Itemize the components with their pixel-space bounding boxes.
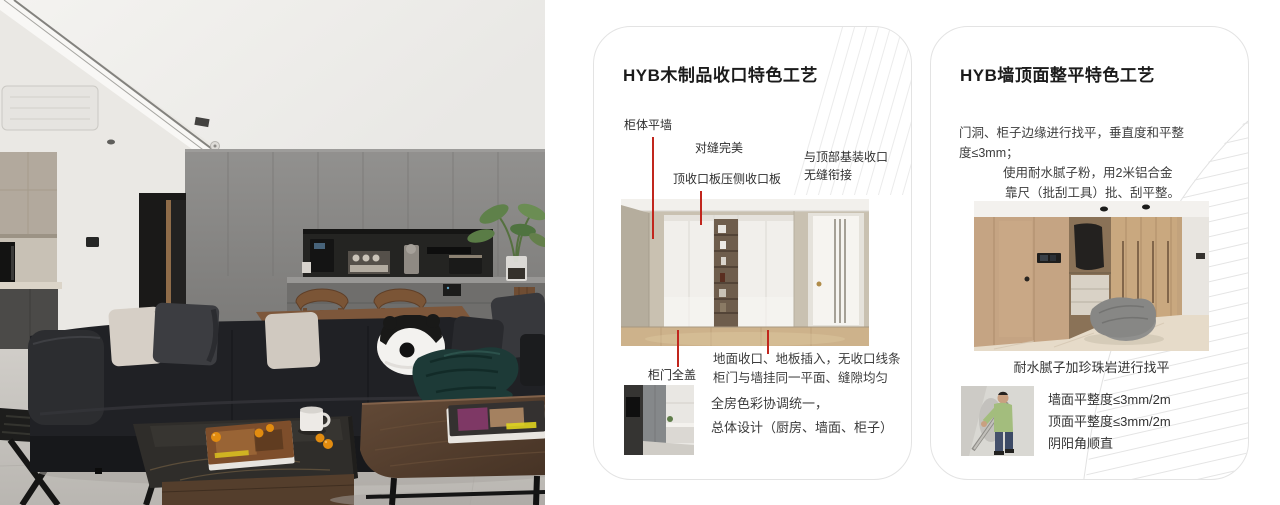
living-room-photo: [0, 0, 545, 505]
card-wood-closing-craft: HYB木制品收口特色工艺 柜体平墙 对缝完美 顶收口板压侧收口板 与顶部基装收口…: [593, 26, 912, 480]
cabinet-render-image: [621, 199, 869, 346]
worker-leveling-image: [961, 386, 1034, 456]
leader-line-top-board: [700, 191, 702, 225]
ceiling: [0, 0, 545, 152]
leader-line-cabinet-wall: [652, 137, 654, 239]
callout-top-closing-board: 顶收口板压侧收口板: [673, 170, 781, 188]
spec-straight-corners: 阴阳角顺直: [1048, 433, 1171, 455]
leader-line-door-cover: [677, 330, 679, 367]
para-leveling-line1: 门洞、柜子边缘进行找平，垂直度和平整: [959, 123, 1184, 143]
para-putty-line1: 使用耐水腻子粉，用2米铝合金: [1003, 163, 1172, 183]
callout-perfect-seam: 对缝完美: [695, 139, 743, 157]
leveling-specs: 墙面平整度≤3mm/2m 顶面平整度≤3mm/2m 阴阳角顺直: [1048, 389, 1171, 455]
summary-color-harmony: 全房色彩协调统一，: [711, 393, 828, 412]
spec-ceiling-flatness: 顶面平整度≤3mm/2m: [1048, 411, 1171, 433]
wood-hallway-image: [974, 201, 1209, 351]
para-putty-line2: 靠尺（批刮工具）批、刮平整。: [1005, 183, 1180, 203]
image-caption: 耐水腻子加珍珠岩进行找平: [974, 357, 1209, 376]
callout-ceiling-connection: 与顶部基装收口 无缝衔接: [804, 148, 888, 184]
light-switch: [86, 237, 99, 247]
note-flush-plane: 柜门与墙挂同一平面、缝隙均匀: [713, 369, 888, 388]
downlight: [107, 140, 115, 145]
note-floor-closing: 地面收口、地板插入，无收口线条: [713, 350, 901, 369]
magazine-on-walnut-table: [446, 400, 545, 443]
card-wall-leveling-craft: HYB墙顶面整平特色工艺 门洞、柜子边缘进行找平，垂直度和平整 度≤3mm； 使…: [930, 26, 1249, 480]
coffee-niche: [302, 229, 493, 277]
page: HYB木制品收口特色工艺 柜体平墙 对缝完美 顶收口板压侧收口板 与顶部基装收口…: [0, 0, 1280, 505]
magazine-on-marble-table: [205, 420, 294, 470]
callout-full-cover-door: 柜门全盖: [648, 366, 696, 384]
callout-ceiling-line1: 与顶部基装收口: [804, 148, 888, 166]
summary-overall-design: 总体设计（厨房、墙面、柜子）: [711, 417, 893, 436]
para-leveling-line2: 度≤3mm；: [959, 143, 1019, 163]
interior-thumbnail-image: [624, 385, 694, 455]
leader-line-floor-closing: [767, 330, 769, 354]
card1-title: HYB木制品收口特色工艺: [623, 61, 818, 86]
callout-cabinet-flush-wall: 柜体平墙: [624, 116, 672, 134]
white-door: [813, 216, 859, 325]
spec-wall-flatness: 墙面平整度≤3mm/2m: [1048, 389, 1171, 411]
card2-title: HYB墙顶面整平特色工艺: [960, 61, 1155, 86]
callout-ceiling-line2: 无缝衔接: [804, 166, 888, 184]
